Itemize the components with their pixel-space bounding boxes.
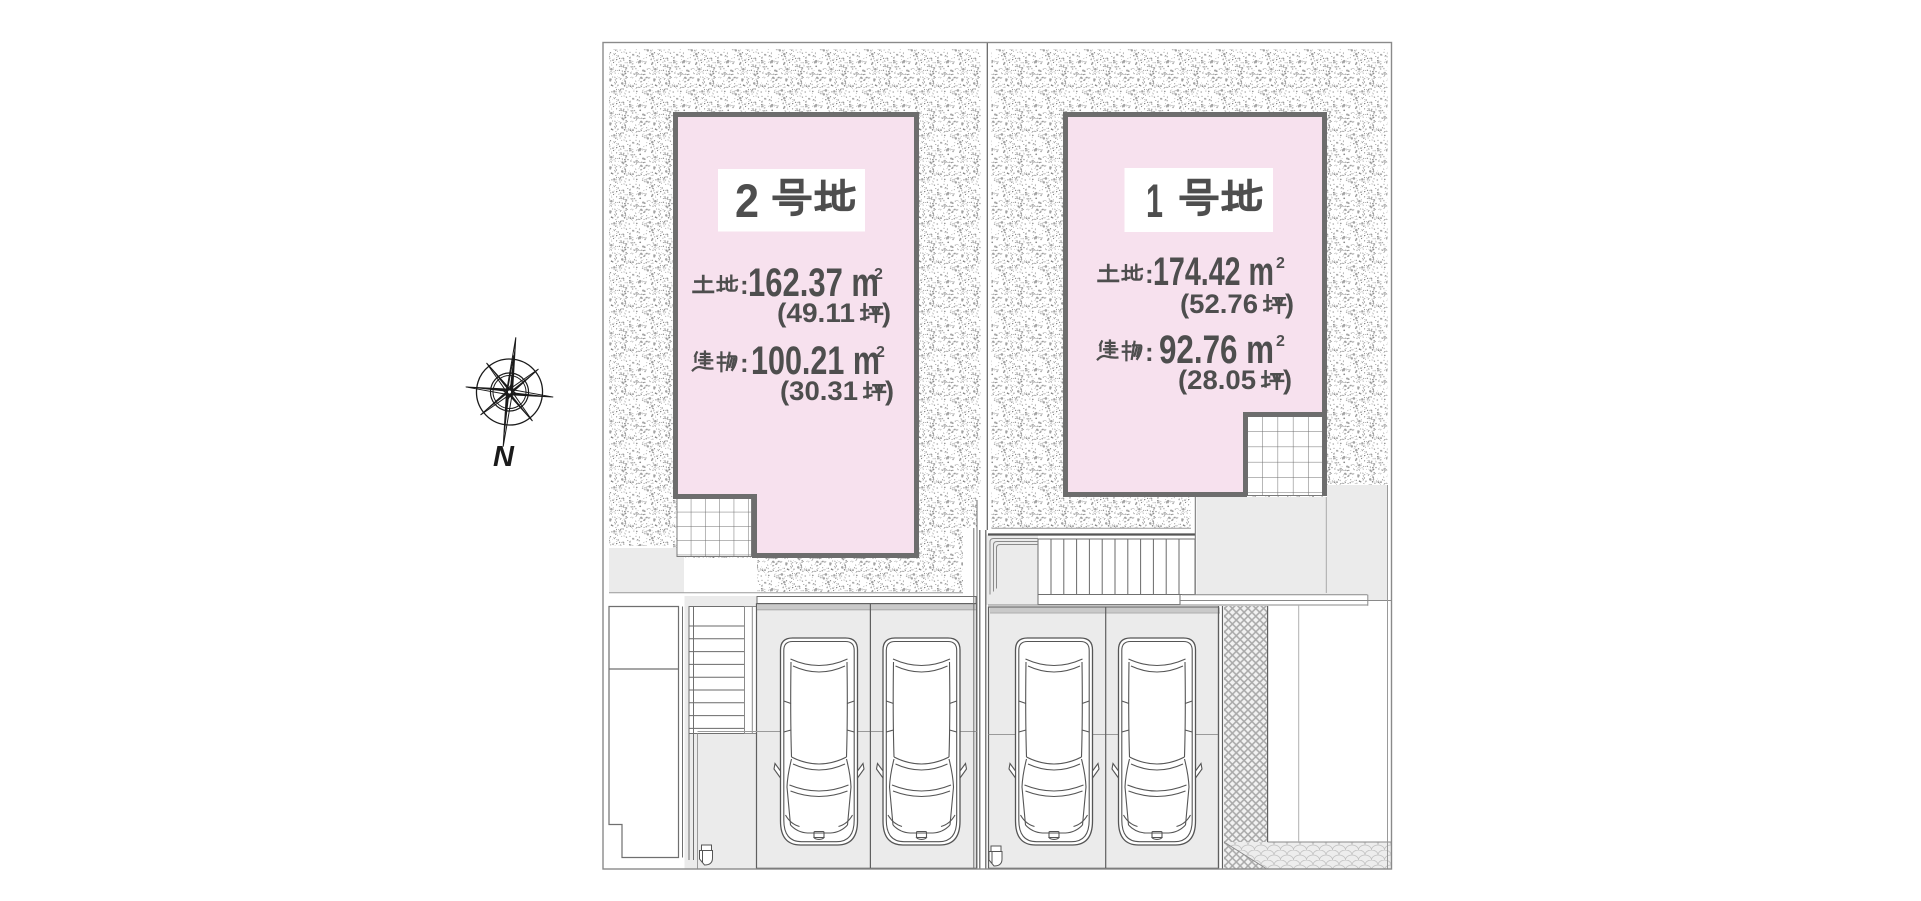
svg-text:1: 1	[1146, 174, 1163, 227]
svg-text:): )	[1283, 365, 1292, 395]
svg-text:2: 2	[735, 174, 759, 227]
svg-text:N: N	[493, 441, 515, 473]
svg-text:(30.31: (30.31	[780, 376, 858, 406]
svg-text:174.42 m: 174.42 m	[1153, 250, 1274, 294]
svg-text:2: 2	[876, 344, 885, 361]
svg-text:): )	[885, 376, 894, 406]
svg-text:): )	[882, 298, 891, 328]
svg-text:(28.05: (28.05	[1178, 365, 1256, 395]
svg-text:): )	[1285, 289, 1294, 319]
svg-text:2: 2	[874, 266, 883, 283]
svg-text:(49.11: (49.11	[777, 298, 855, 328]
svg-text:2: 2	[1276, 255, 1285, 272]
svg-text:(52.76: (52.76	[1180, 289, 1258, 319]
svg-text::: :	[1145, 337, 1154, 367]
svg-text:2: 2	[1276, 333, 1285, 350]
svg-text::: :	[740, 348, 749, 378]
